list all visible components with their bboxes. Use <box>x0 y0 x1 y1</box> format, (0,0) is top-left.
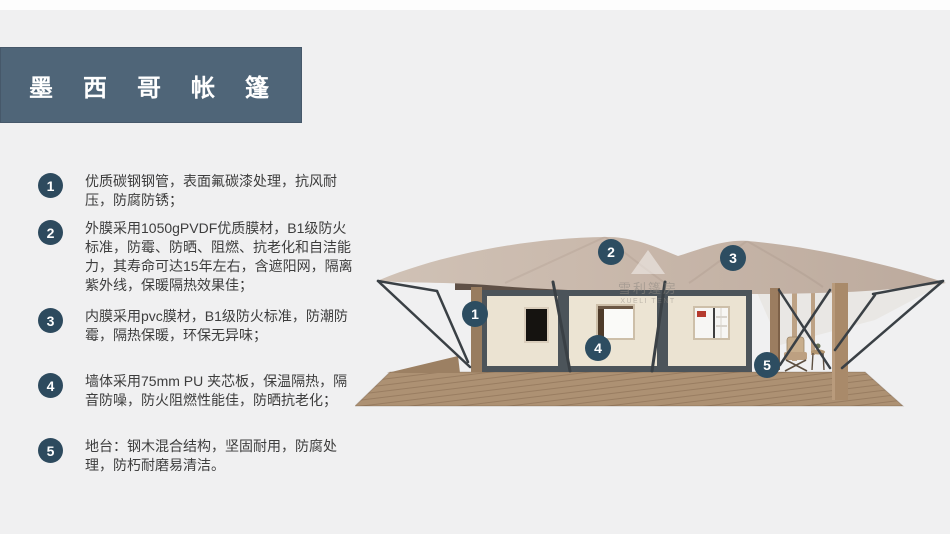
window-interior <box>693 306 730 340</box>
callout-3: 3 <box>720 245 746 271</box>
feature-text: 优质碳钢钢管，表面氟碳漆处理，抗风耐压，防腐防锈； <box>85 172 357 210</box>
wall-cabins <box>471 287 752 372</box>
feature-item: 5 地台：钢木混合结构，坚固耐用，防腐处理，防朽耐磨易清洁。 <box>38 437 357 475</box>
feature-text: 外膜采用1050gPVDF优质膜材，B1级防火标准，防霉、防晒、阻燃、抗老化和自… <box>85 219 357 295</box>
feature-number-badge: 5 <box>38 438 63 463</box>
callout-5: 5 <box>754 352 780 378</box>
slide: 墨西哥帐篷 1 优质碳钢钢管，表面氟碳漆处理，抗风耐压，防腐防锈； 2 外膜采用… <box>0 0 950 534</box>
feature-text: 地台：钢木混合结构，坚固耐用，防腐处理，防朽耐磨易清洁。 <box>85 437 357 475</box>
feature-item: 1 优质碳钢钢管，表面氟碳漆处理，抗风耐压，防腐防锈； <box>38 172 357 210</box>
feature-text: 内膜采用pvc膜材，B1级防火标准，防潮防霉，隔热保暖，环保无异味； <box>85 307 357 345</box>
feature-number-badge: 3 <box>38 308 63 333</box>
feature-text: 墙体采用75mm PU 夹芯板，保温隔热，隔音防噪，防火阻燃性能佳，防晒抗老化； <box>85 372 357 410</box>
callout-2: 2 <box>598 239 624 265</box>
window-dark <box>524 307 549 343</box>
title-banner: 墨西哥帐篷 <box>0 47 302 123</box>
feature-item: 3 内膜采用pvc膜材，B1级防火标准，防潮防霉，隔热保暖，环保无异味； <box>38 307 357 345</box>
tent-illustration: 雪利篷房 XUELI TENT 1 2 3 4 5 <box>355 225 950 460</box>
feature-item: 2 外膜采用1050gPVDF优质膜材，B1级防火标准，防霉、防晒、阻燃、抗老化… <box>38 219 357 295</box>
callout-4: 4 <box>585 335 611 361</box>
feature-number-badge: 1 <box>38 173 63 198</box>
feature-item: 4 墙体采用75mm PU 夹芯板，保温隔热，隔音防噪，防火阻燃性能佳，防晒抗老… <box>38 372 357 410</box>
feature-number-badge: 2 <box>38 220 63 245</box>
callout-1: 1 <box>462 301 488 327</box>
page-title: 墨西哥帐篷 <box>1 68 299 103</box>
feature-number-badge: 4 <box>38 373 63 398</box>
tent-drawing <box>355 225 950 460</box>
top-strip <box>0 0 950 10</box>
